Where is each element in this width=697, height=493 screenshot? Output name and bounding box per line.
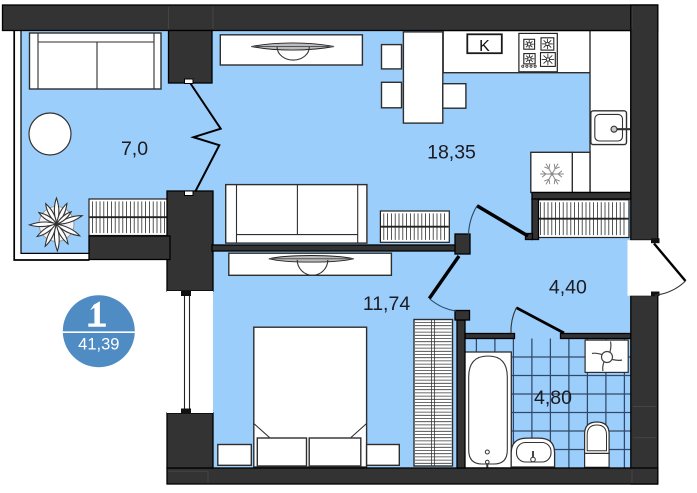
svg-text:7,0: 7,0 xyxy=(121,138,148,160)
svg-text:18,35: 18,35 xyxy=(427,141,476,163)
svg-text:11,74: 11,74 xyxy=(363,293,411,315)
svg-text:4,40: 4,40 xyxy=(549,277,587,299)
svg-text:K: K xyxy=(479,38,490,55)
svg-text:41,39: 41,39 xyxy=(78,335,119,353)
svg-text:4,80: 4,80 xyxy=(534,387,572,409)
